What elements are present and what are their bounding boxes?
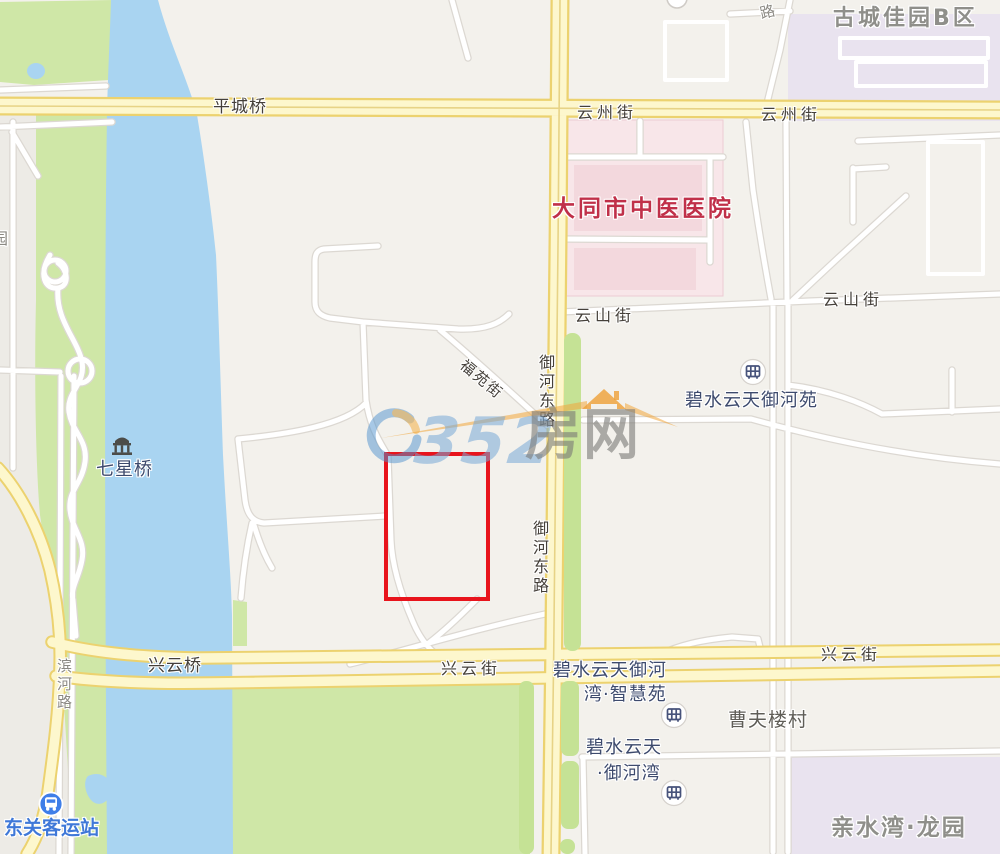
road-label-yunshanjie-2: 云山街	[823, 290, 883, 310]
road-label-xingyunqiao: 兴云桥	[148, 656, 202, 677]
road-label-yunshanjie-1: 云山街	[575, 306, 635, 326]
map-canvas[interactable]: 园 平城桥 云州街 云州街 路 云山街 云山街 御河东路 御河东路 福苑街 滨河…	[0, 0, 1000, 854]
road-label-yunzhoujie-2: 云州街	[761, 105, 821, 125]
poi-label-bishui-yuheyuan[interactable]: 碧水云天御河苑	[685, 390, 818, 413]
poi-label-hospital[interactable]: 大同市中医医院	[552, 195, 734, 224]
residential-icon-yuhewan[interactable]	[662, 781, 687, 806]
highlight-rectangle	[384, 452, 490, 601]
map-base-layer	[0, 0, 1000, 854]
district-label-gucheng-jiayuan[interactable]: 古城佳园B区	[833, 5, 978, 33]
poi-label-bus-station[interactable]: 东关客运站	[4, 817, 99, 841]
road-label-yuhedonglu-2: 御河东路	[531, 520, 547, 596]
poi-label-zhihuiyuan-line2[interactable]: 湾·智慧苑	[584, 684, 667, 707]
road-label-yuhedonglu-1: 御河东路	[537, 354, 553, 430]
road-label-xingyunjie-1: 兴云街	[441, 659, 501, 679]
poi-label-yuhewan-line1[interactable]: 碧水云天	[586, 737, 662, 760]
road-label-pingchengqiao: 平城桥	[213, 97, 267, 118]
bus-station-icon[interactable]	[40, 793, 63, 816]
district-label-qinshuiwan[interactable]: 亲水湾·龙园	[831, 814, 967, 843]
poi-label-zhihuiyuan-line1[interactable]: 碧水云天御河	[553, 660, 667, 683]
poi-label-yuhewan-line2[interactable]: ·御河湾	[597, 763, 661, 786]
residential-icon-yuheyuan[interactable]	[741, 360, 766, 385]
village-label-caofulou[interactable]: 曹夫楼村	[728, 709, 808, 733]
poi-label-qixingqiao[interactable]: 七星桥	[96, 459, 153, 482]
park-label-partial: 园	[0, 229, 8, 249]
road-label-xingyunjie-2: 兴云街	[821, 645, 881, 665]
road-label-binhelu: 滨河路	[56, 658, 71, 712]
road-label-yunzhoujie-1: 云州街	[577, 103, 637, 123]
